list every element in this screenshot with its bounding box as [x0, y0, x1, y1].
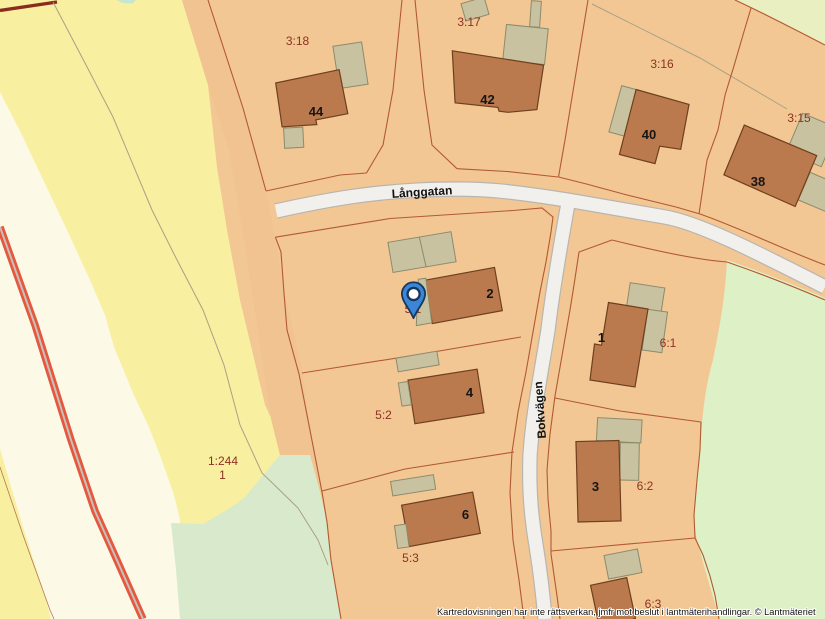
svg-text:44: 44	[309, 104, 324, 119]
svg-text:40: 40	[642, 127, 656, 142]
svg-text:3:16: 3:16	[650, 57, 674, 71]
svg-text:1: 1	[598, 330, 605, 345]
svg-text:3:18: 3:18	[286, 34, 310, 48]
svg-text:3: 3	[592, 479, 599, 494]
svg-text:3:15: 3:15	[787, 111, 811, 125]
svg-text:38: 38	[751, 174, 765, 189]
svg-text:42: 42	[480, 92, 494, 107]
svg-text:6: 6	[462, 507, 469, 522]
svg-text:1: 1	[219, 468, 226, 482]
svg-text:5:2: 5:2	[375, 408, 392, 422]
svg-text:4: 4	[466, 385, 474, 400]
svg-text:Kartredovisningen har inte rät: Kartredovisningen har inte rättsverkan, …	[437, 607, 816, 617]
svg-text:1:244: 1:244	[208, 454, 238, 468]
svg-text:6:2: 6:2	[637, 479, 654, 493]
svg-text:5:3: 5:3	[402, 551, 419, 565]
svg-text:6:1: 6:1	[660, 336, 677, 350]
svg-text:2: 2	[486, 286, 493, 301]
svg-text:3:17: 3:17	[457, 15, 481, 29]
